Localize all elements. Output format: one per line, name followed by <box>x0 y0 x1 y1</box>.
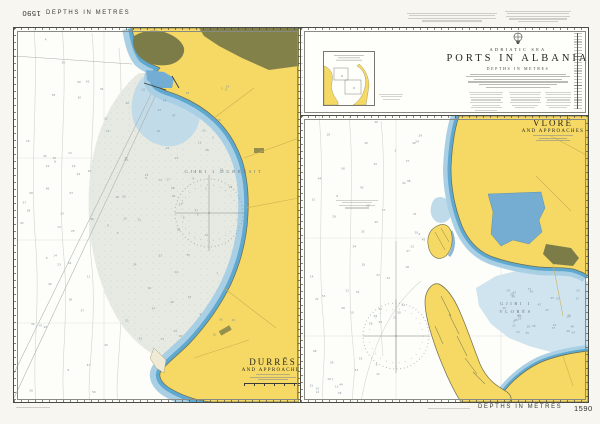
svg-text:37: 37 <box>552 326 556 330</box>
chart-sheet: 1590 DEPTHS IN METRES DEPTHS IN METRES 1… <box>0 0 600 424</box>
svg-text:3: 3 <box>205 186 207 190</box>
svg-text:37: 37 <box>23 201 27 205</box>
svg-text:23: 23 <box>410 245 414 249</box>
vlore-subtitle: AND APPROACHES <box>503 129 588 134</box>
svg-text:28: 28 <box>332 215 336 219</box>
svg-text:9: 9 <box>46 256 48 260</box>
bay-label-vlore-line1: GJIRI I <box>486 300 546 308</box>
note-column-1 <box>469 90 503 111</box>
svg-text:14: 14 <box>310 275 314 279</box>
durres-panel: 4313324716203275027446371723111333263240… <box>14 28 301 402</box>
svg-text:38: 38 <box>407 179 411 183</box>
compass-rose-icon <box>363 299 429 373</box>
svg-text:24: 24 <box>387 276 391 280</box>
margin-depths-bottom: DEPTHS IN METRES <box>478 404 562 410</box>
svg-text:7: 7 <box>332 378 334 382</box>
svg-text:29: 29 <box>122 195 126 199</box>
inset-coverage-boxes <box>334 68 361 94</box>
svg-text:46: 46 <box>374 120 378 124</box>
svg-text:25: 25 <box>551 296 555 300</box>
svg-text:14: 14 <box>316 390 320 394</box>
svg-text:38: 38 <box>186 91 190 95</box>
svg-text:37: 37 <box>81 308 85 312</box>
note-column-2 <box>509 90 541 108</box>
margin-note-block-1 <box>407 11 497 22</box>
svg-text:26: 26 <box>213 333 217 337</box>
svg-text:52: 52 <box>369 321 373 325</box>
svg-text:6: 6 <box>197 212 199 216</box>
svg-text:10: 10 <box>350 310 354 314</box>
svg-text:16: 16 <box>362 262 366 266</box>
svg-text:13: 13 <box>566 314 570 318</box>
svg-text:16: 16 <box>88 169 92 173</box>
svg-text:42: 42 <box>513 291 517 295</box>
svg-text:9: 9 <box>192 176 194 180</box>
svg-text:13: 13 <box>160 337 164 341</box>
svg-text:50: 50 <box>397 311 401 315</box>
svg-text:18: 18 <box>327 132 331 136</box>
svg-text:24: 24 <box>401 303 405 307</box>
svg-text:8: 8 <box>225 87 227 91</box>
inset-land-west <box>324 66 338 105</box>
svg-text:10: 10 <box>364 141 368 145</box>
svg-text:15: 15 <box>374 162 378 166</box>
chart-number-top: 1590 <box>22 9 41 18</box>
vlore-map: 4611175830183225172942271055313322104421… <box>301 116 588 402</box>
svg-text:20: 20 <box>527 324 531 328</box>
svg-text:55: 55 <box>532 324 536 328</box>
margin-note-bottom-left <box>16 405 50 408</box>
svg-text:17: 17 <box>166 178 170 182</box>
svg-text:8: 8 <box>183 216 185 220</box>
svg-text:38: 38 <box>177 227 181 231</box>
durres-scale-bar <box>244 383 301 386</box>
svg-text:42: 42 <box>46 164 50 168</box>
svg-text:45: 45 <box>86 79 90 83</box>
chart-notes <box>458 72 578 88</box>
svg-text:11: 11 <box>137 218 141 222</box>
svg-text:29: 29 <box>379 320 383 324</box>
svg-text:56: 56 <box>29 191 33 195</box>
svg-text:22: 22 <box>402 181 406 185</box>
svg-text:35: 35 <box>62 60 66 64</box>
inset-caption <box>379 92 403 100</box>
svg-text:8: 8 <box>54 159 56 163</box>
svg-text:53: 53 <box>159 253 163 257</box>
svg-text:46: 46 <box>570 324 574 328</box>
svg-text:20: 20 <box>179 334 183 338</box>
svg-text:56: 56 <box>219 317 223 321</box>
svg-text:5: 5 <box>117 231 119 235</box>
svg-text:31: 31 <box>312 198 316 202</box>
svg-text:43: 43 <box>87 363 91 367</box>
svg-text:37: 37 <box>576 297 580 301</box>
svg-text:29: 29 <box>217 118 221 122</box>
vlore-title: VLORË <box>503 118 588 128</box>
svg-text:9: 9 <box>200 312 202 316</box>
svg-text:10: 10 <box>142 88 146 92</box>
svg-text:34: 34 <box>100 87 104 91</box>
svg-text:5: 5 <box>395 149 397 153</box>
svg-text:54: 54 <box>68 261 72 265</box>
svg-text:21: 21 <box>516 330 520 334</box>
svg-text:43: 43 <box>104 343 108 347</box>
svg-text:51: 51 <box>356 290 360 294</box>
chart-neatline: 4313324716203275027446371723111333263240… <box>13 27 589 403</box>
svg-text:5: 5 <box>221 87 223 91</box>
svg-text:33: 33 <box>310 384 314 388</box>
svg-text:9: 9 <box>419 232 421 236</box>
svg-text:24: 24 <box>77 172 81 176</box>
bay-label-vlore: GJIRI I VLORËS <box>486 300 546 316</box>
svg-text:45: 45 <box>360 186 364 190</box>
svg-text:14: 14 <box>106 129 110 133</box>
margin-note-block-2 <box>505 9 571 22</box>
svg-text:20: 20 <box>157 129 161 133</box>
svg-text:53: 53 <box>322 294 326 298</box>
svg-text:25: 25 <box>71 229 75 233</box>
svg-text:21: 21 <box>229 185 233 189</box>
svg-text:47: 47 <box>152 307 156 311</box>
svg-text:4: 4 <box>45 37 47 41</box>
svg-text:13: 13 <box>68 151 72 155</box>
svg-text:43: 43 <box>355 368 359 372</box>
svg-text:43: 43 <box>20 221 24 225</box>
chart-title: PORTS IN ALBANIA <box>428 53 588 64</box>
svg-text:13: 13 <box>335 385 339 389</box>
durres-title: DURRËS <box>228 357 301 367</box>
svg-text:16: 16 <box>116 195 120 199</box>
svg-text:18: 18 <box>405 265 409 269</box>
chart-depths-note: DEPTHS IN METRES <box>458 66 578 71</box>
svg-text:40: 40 <box>126 101 130 105</box>
svg-text:30: 30 <box>78 96 82 100</box>
svg-text:27: 27 <box>406 249 410 253</box>
svg-text:23: 23 <box>125 318 129 322</box>
svg-text:13: 13 <box>57 225 61 229</box>
svg-text:47: 47 <box>158 108 162 112</box>
vlore-panel: 4611175830183225172942271055313322104421… <box>301 116 588 402</box>
svg-text:9: 9 <box>513 319 515 323</box>
svg-text:56: 56 <box>92 390 96 394</box>
svg-text:28: 28 <box>27 208 31 212</box>
svg-text:23: 23 <box>57 263 61 267</box>
svg-text:37: 37 <box>556 296 560 300</box>
svg-text:24: 24 <box>133 262 137 266</box>
svg-text:32: 32 <box>123 216 127 220</box>
svg-text:47: 47 <box>39 323 43 327</box>
svg-text:24: 24 <box>166 146 170 150</box>
svg-text:35: 35 <box>361 229 365 233</box>
svg-text:32: 32 <box>188 295 192 299</box>
svg-text:42: 42 <box>175 270 179 274</box>
svg-text:21: 21 <box>393 316 397 320</box>
svg-text:45: 45 <box>422 238 426 242</box>
svg-text:44: 44 <box>318 177 322 181</box>
svg-text:17: 17 <box>382 208 386 212</box>
svg-text:37: 37 <box>124 156 128 160</box>
svg-text:11: 11 <box>87 275 91 279</box>
svg-text:29: 29 <box>44 325 48 329</box>
svg-text:14: 14 <box>53 254 57 258</box>
svg-text:34: 34 <box>571 331 575 335</box>
svg-text:28: 28 <box>566 329 570 333</box>
svg-text:9: 9 <box>67 368 69 372</box>
svg-text:23: 23 <box>60 212 64 216</box>
svg-text:46: 46 <box>90 217 94 221</box>
svg-text:16: 16 <box>148 286 152 290</box>
svg-text:43: 43 <box>43 154 47 158</box>
svg-text:46: 46 <box>231 318 235 322</box>
svg-text:44: 44 <box>172 194 176 198</box>
inset-diagram <box>323 51 375 106</box>
svg-text:32: 32 <box>31 322 35 326</box>
svg-text:33: 33 <box>139 337 143 341</box>
svg-text:47: 47 <box>172 114 176 118</box>
svg-text:35: 35 <box>186 253 190 257</box>
svg-text:24: 24 <box>415 139 419 143</box>
svg-text:20: 20 <box>375 220 379 224</box>
svg-text:56: 56 <box>69 297 73 301</box>
svg-text:47: 47 <box>195 208 199 212</box>
svg-text:54: 54 <box>163 99 167 103</box>
svg-text:16: 16 <box>26 139 30 143</box>
svg-text:22: 22 <box>512 324 516 328</box>
svg-text:21: 21 <box>315 297 319 301</box>
svg-text:8: 8 <box>376 363 378 367</box>
svg-text:26: 26 <box>341 306 345 310</box>
svg-text:28: 28 <box>338 391 342 395</box>
svg-text:13: 13 <box>158 178 162 182</box>
svg-text:29: 29 <box>419 134 423 138</box>
svg-text:40: 40 <box>530 290 534 294</box>
sea-name: ADRIATIC SEA <box>458 47 578 52</box>
svg-text:36: 36 <box>205 148 209 152</box>
svg-text:23: 23 <box>198 140 202 144</box>
svg-text:47: 47 <box>376 273 380 277</box>
svg-text:31: 31 <box>413 212 417 216</box>
svg-text:44: 44 <box>339 382 343 386</box>
durres-subtitle: AND APPROACHES <box>228 368 301 373</box>
svg-text:46: 46 <box>46 187 50 191</box>
svg-text:19: 19 <box>72 164 76 168</box>
vlore-title-block: VLORË AND APPROACHES <box>503 118 588 141</box>
svg-text:53: 53 <box>69 191 73 195</box>
svg-text:55: 55 <box>359 357 363 361</box>
svg-text:26: 26 <box>29 389 33 393</box>
svg-text:39: 39 <box>330 360 334 364</box>
note-column-3 <box>545 90 571 108</box>
svg-text:31: 31 <box>205 233 209 237</box>
svg-text:32: 32 <box>378 307 382 311</box>
durres-title-block: DURRËS AND APPROACHES <box>228 357 301 386</box>
svg-text:56: 56 <box>341 167 345 171</box>
svg-text:37: 37 <box>406 159 410 163</box>
metres-fathoms-scale <box>571 30 584 112</box>
chart-number-bottom: 1590 <box>574 404 593 413</box>
svg-text:5: 5 <box>145 176 147 180</box>
margin-note-bottom <box>428 406 470 409</box>
svg-text:5: 5 <box>212 136 214 140</box>
svg-text:55: 55 <box>52 93 56 97</box>
bay-label-durres: GJIRI I DURRËSIT <box>154 169 294 174</box>
svg-text:34: 34 <box>173 329 177 333</box>
sea-area-note <box>331 198 383 209</box>
svg-text:26: 26 <box>171 186 175 190</box>
svg-text:25: 25 <box>175 156 179 160</box>
svg-text:32: 32 <box>202 129 206 133</box>
margin-depths-top: DEPTHS IN METRES <box>46 10 130 16</box>
svg-text:50: 50 <box>77 80 81 84</box>
svg-text:16: 16 <box>327 377 331 381</box>
svg-text:49: 49 <box>170 300 174 304</box>
svg-text:29: 29 <box>374 314 378 318</box>
title-panel: ADRIATIC SEA PORTS IN ALBANIA DEPTHS IN … <box>301 28 588 116</box>
svg-text:7: 7 <box>216 272 218 276</box>
svg-text:48: 48 <box>313 349 317 353</box>
admiralty-crest-icon <box>512 31 524 45</box>
durres-map: 4313324716203275027446371723111333263240… <box>14 28 299 402</box>
svg-text:31: 31 <box>104 117 108 121</box>
svg-text:49: 49 <box>48 282 52 286</box>
svg-text:35: 35 <box>526 331 530 335</box>
svg-text:54: 54 <box>353 245 357 249</box>
svg-text:11: 11 <box>345 288 349 292</box>
svg-text:55: 55 <box>576 289 580 293</box>
svg-text:12: 12 <box>376 372 380 376</box>
svg-text:7: 7 <box>181 200 183 204</box>
bay-label-vlore-line2: VLORËS <box>486 308 546 316</box>
svg-text:9: 9 <box>107 224 109 228</box>
